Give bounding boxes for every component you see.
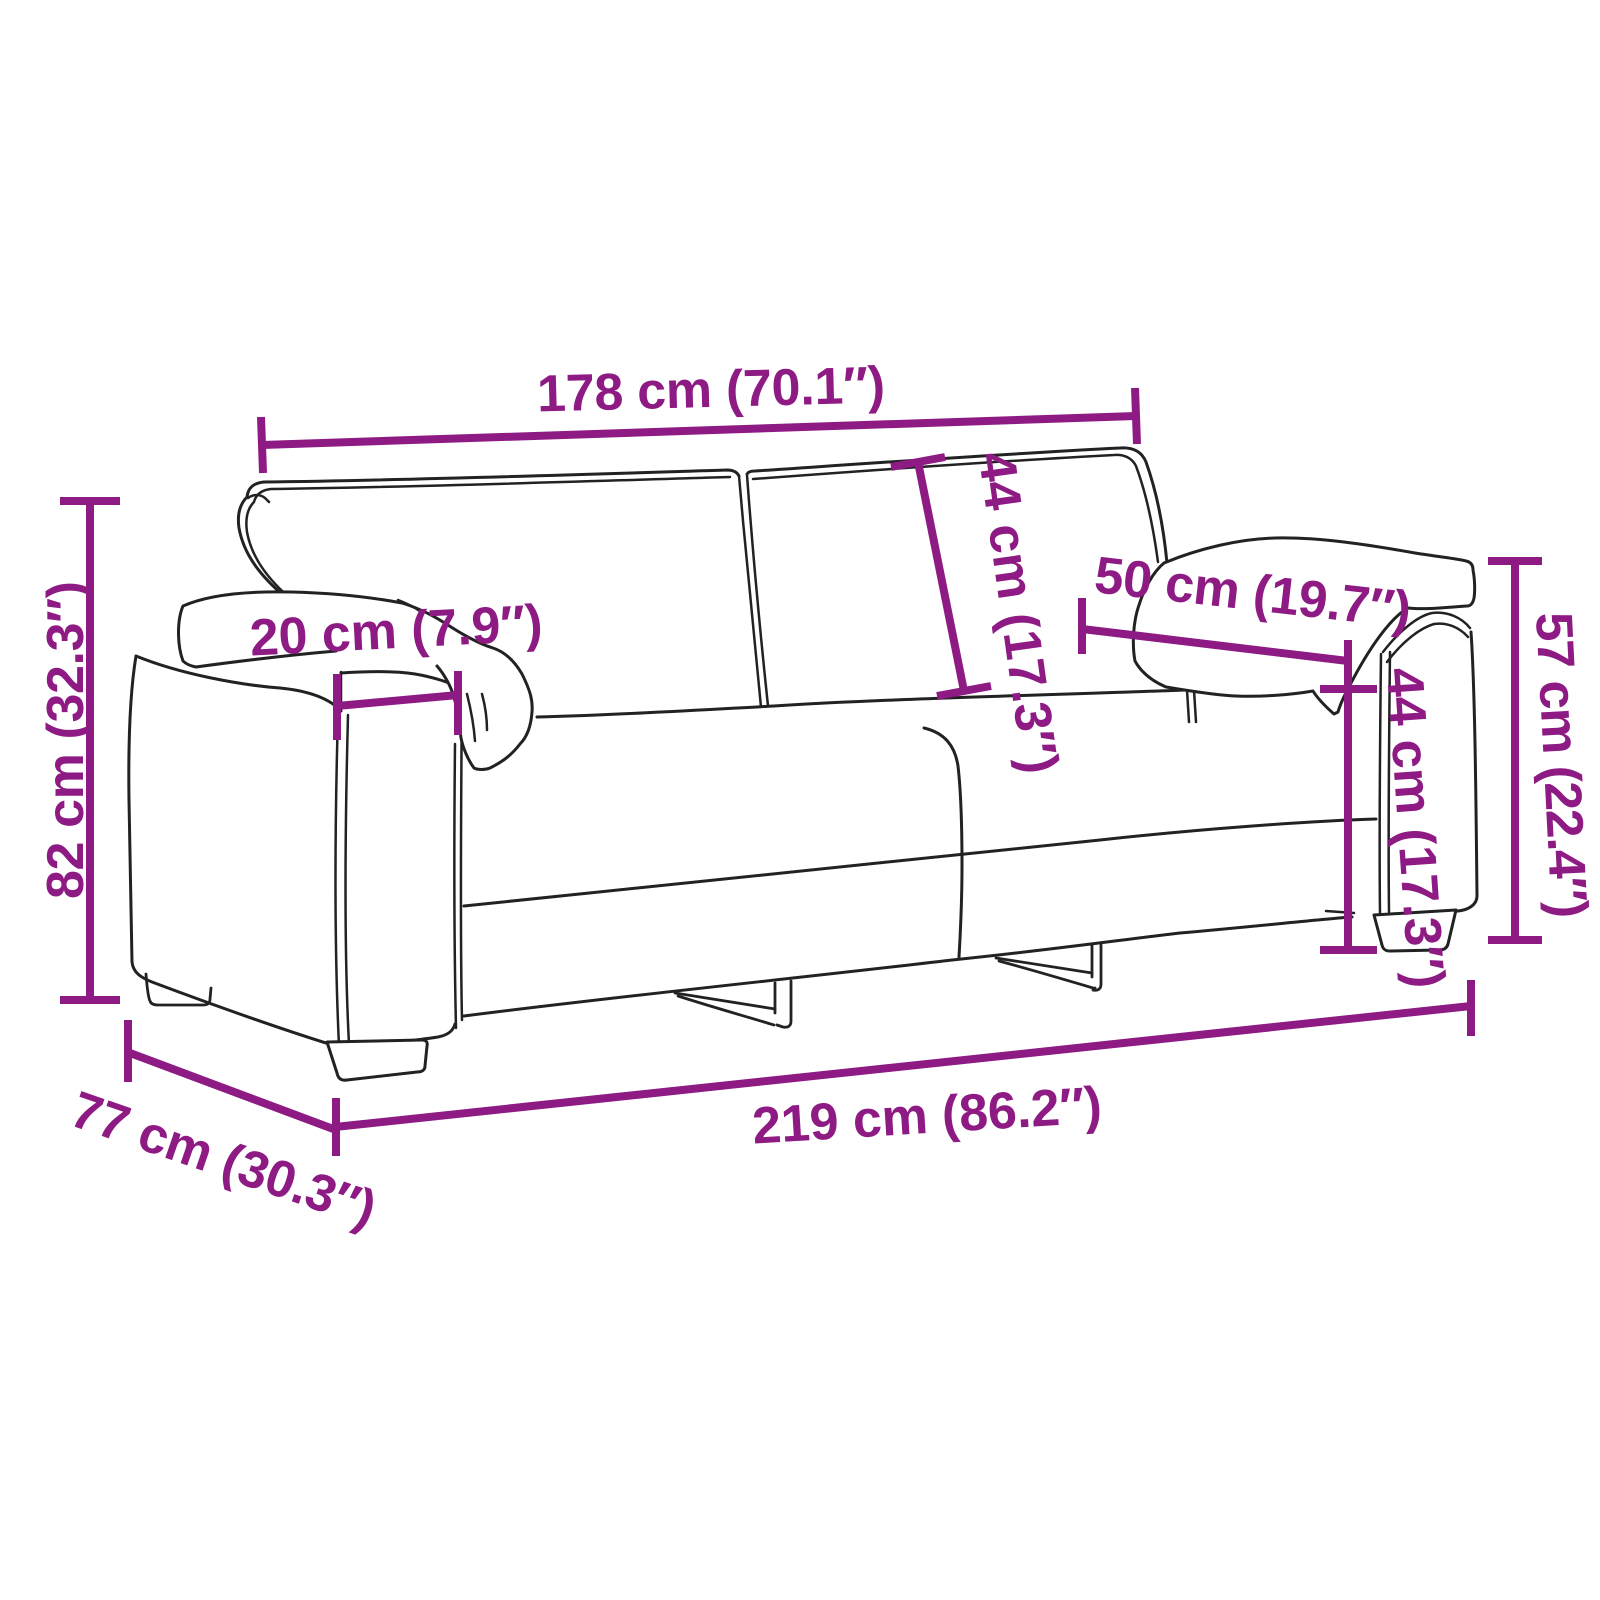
- svg-text:82 cm (32.3″): 82 cm (32.3″): [37, 581, 95, 899]
- svg-text:178 cm (70.1″): 178 cm (70.1″): [536, 356, 885, 423]
